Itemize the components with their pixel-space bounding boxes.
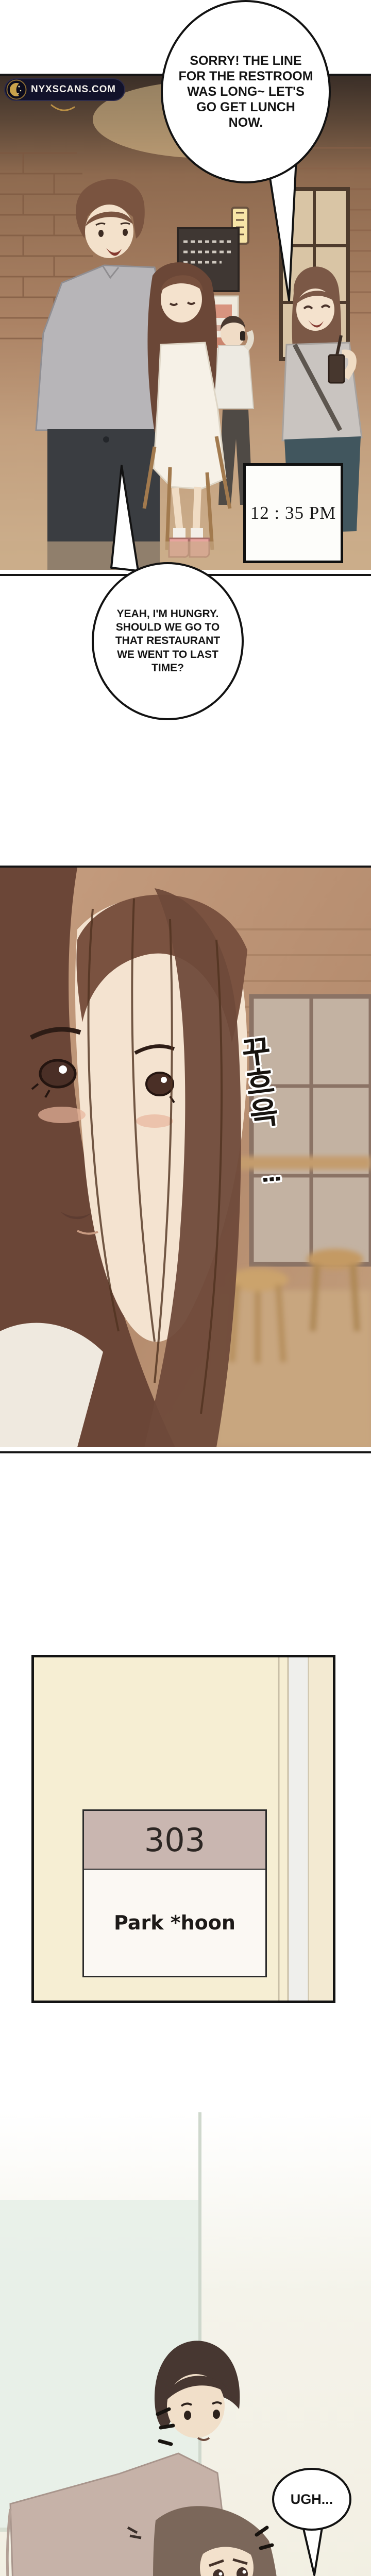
- clock-time: 12 : 35 PM: [250, 503, 336, 523]
- patient-name: Park *hoon: [114, 1911, 235, 1934]
- watermark-badge: NYXSCANS.COM: [4, 78, 125, 101]
- sfx-growl-dots: ⋮: [259, 1167, 283, 1191]
- speech-text-ugh: UGH...: [291, 2492, 333, 2507]
- sfx-dots-text: ⋮: [258, 1167, 285, 1191]
- watermark-site: NYXSCANS.COM: [31, 84, 116, 95]
- room-number-plate: 303: [84, 1811, 265, 1870]
- speech-bubble-ugh: UGH...: [272, 2468, 351, 2531]
- panel-door-sign: 303 Park *hoon: [31, 1655, 335, 2003]
- speech-bubble-hungry: YEAH, I'M HUNGRY. SHOULD WE GO TO THAT R…: [92, 562, 244, 720]
- gold-swoosh-icon: [49, 102, 76, 113]
- speech-text-sorry: SORRY! THE LINE FOR THE RESTROOM WAS LON…: [178, 53, 313, 130]
- room-number: 303: [144, 1821, 205, 1859]
- webtoon-page: NYXSCANS.COM SORRY! THE LINE FOR THE RES…: [0, 0, 371, 2576]
- speech-bubble-sorry: SORRY! THE LINE FOR THE RESTROOM WAS LON…: [161, 0, 331, 183]
- speech-text-hungry: YEAH, I'M HUNGRY. SHOULD WE GO TO THAT R…: [106, 607, 229, 675]
- speech-tail: [108, 465, 145, 573]
- panel-closeup-scene: [0, 866, 371, 1453]
- speech-tail: [299, 2523, 326, 2576]
- clock-sign: 12 : 35 PM: [243, 463, 343, 563]
- room-sign: 303 Park *hoon: [82, 1809, 267, 1977]
- closeup-art: [0, 868, 371, 1447]
- crescent-moon-icon: [6, 79, 27, 100]
- patient-name-plate: Park *hoon: [84, 1870, 265, 1975]
